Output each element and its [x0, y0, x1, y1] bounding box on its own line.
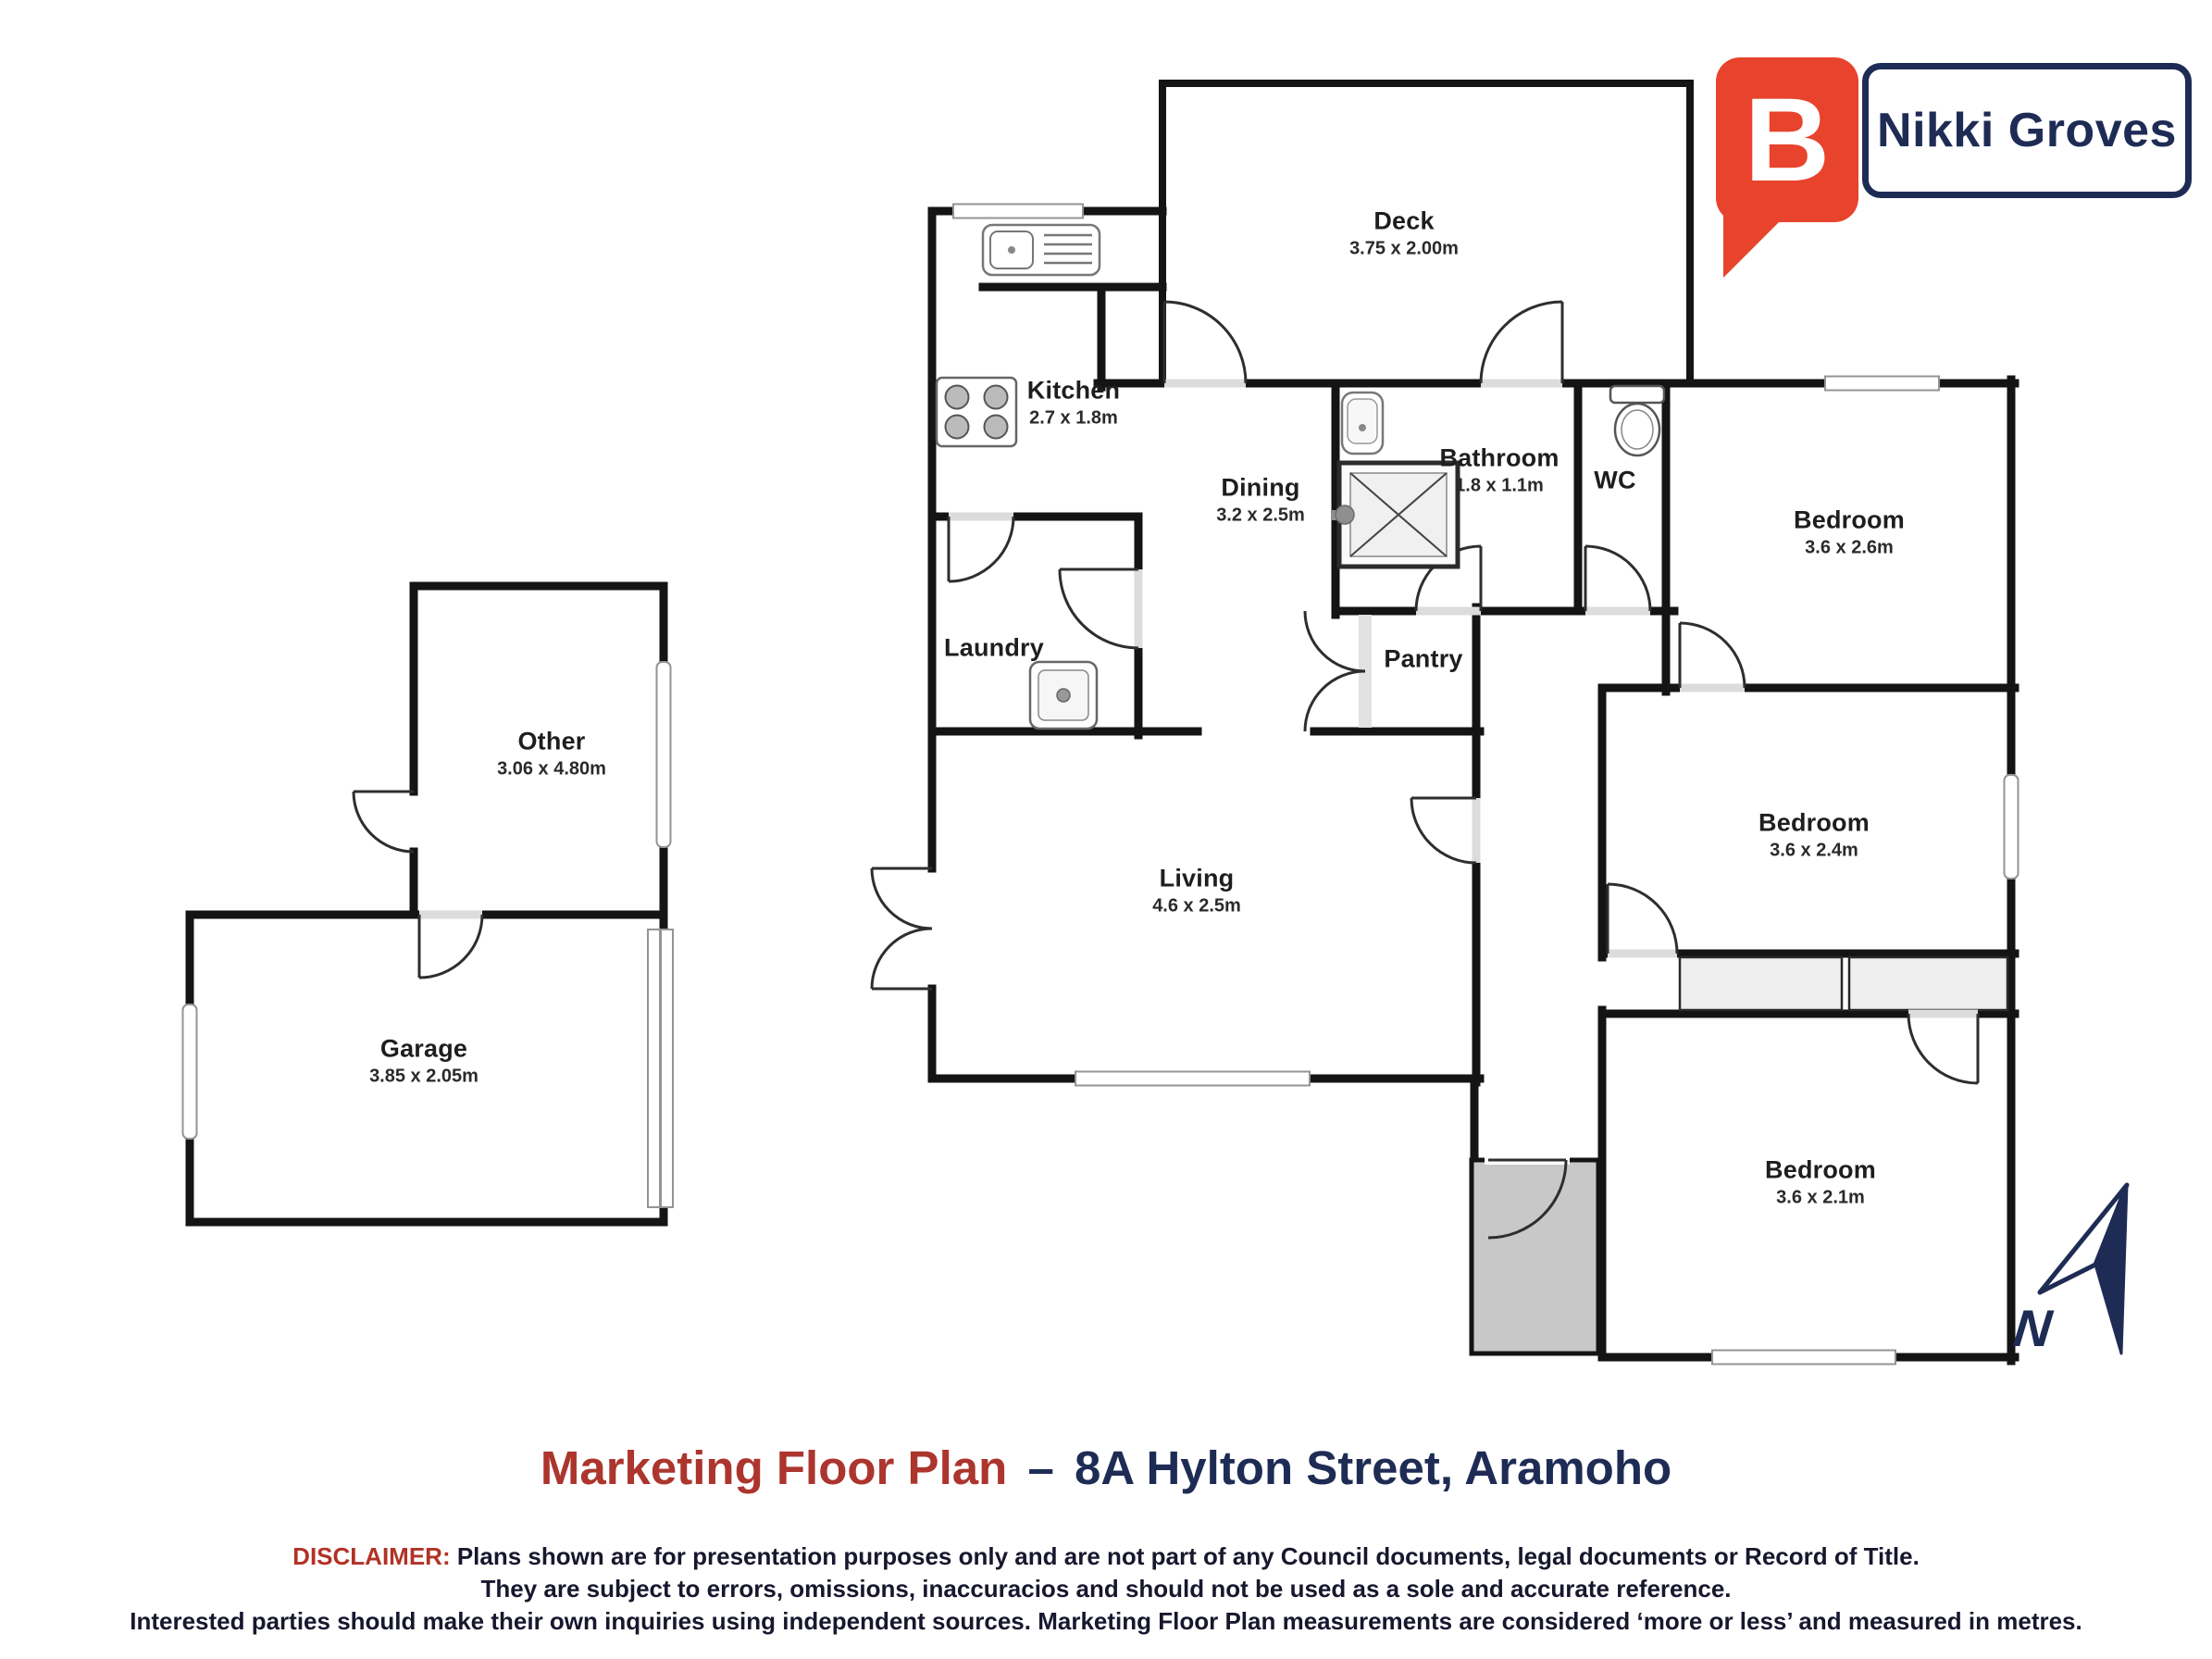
floor-plan-drawing — [0, 0, 2212, 1659]
brand-name-box: Nikki Groves — [1862, 63, 2192, 198]
room-label-wc: WC — [1594, 467, 1635, 495]
garage-door-outer — [648, 929, 660, 1207]
other-room-window — [657, 662, 671, 847]
other-room-door — [354, 792, 414, 852]
bathroom-sink-icon — [1342, 393, 1383, 454]
stove-icon — [937, 378, 1016, 446]
kitchen-laundry-door — [949, 517, 1013, 581]
bedroom1-door — [1680, 623, 1745, 688]
laundry-door — [1060, 569, 1138, 648]
room-label-dining: Dining 3.2 x 2.5m — [1216, 474, 1305, 527]
title-prefix: Marketing Floor Plan — [541, 1441, 1007, 1494]
living-window — [1075, 1072, 1310, 1086]
floor-plan-page: B Nikki Groves Deck 3.75 x 2.00m Kitchen… — [0, 0, 2212, 1659]
bedroom3-window — [1712, 1351, 1895, 1365]
room-label-pantry: Pantry — [1384, 645, 1462, 674]
north-arrow-label: N — [2011, 1298, 2055, 1358]
storage-block — [1472, 1160, 1598, 1353]
room-label-bathroom: Bathroom 1.8 x 1.1m — [1439, 444, 1559, 497]
garage-window — [183, 1004, 197, 1139]
deck-door-1 — [1164, 302, 1246, 383]
disclaimer-line-1: DISCLAIMER: Plans shown are for presenta… — [0, 1540, 2212, 1573]
pantry-bifold-doors — [1305, 611, 1365, 731]
room-label-laundry: Laundry — [944, 634, 1044, 663]
room-label-garage: Garage 3.85 x 2.05m — [369, 1035, 478, 1088]
closet-left — [1680, 957, 1842, 1010]
laundry-tub-icon — [1030, 662, 1097, 729]
living-hall-door — [1411, 798, 1476, 863]
wc-door — [1585, 546, 1650, 611]
room-label-other: Other 3.06 x 4.80m — [497, 728, 606, 780]
brand-logo-letter: B — [1716, 57, 1858, 222]
bedroom2-door — [1608, 884, 1677, 954]
disclaimer-line-3: Interested parties should make their own… — [0, 1605, 2212, 1638]
room-label-bedroom-3: Bedroom 3.6 x 2.1m — [1765, 1156, 1876, 1209]
room-label-bedroom-2: Bedroom 3.6 x 2.4m — [1758, 809, 1870, 862]
north-arrow-icon — [2040, 1185, 2127, 1353]
garage-door-inner — [661, 929, 673, 1207]
kitchen-sink-icon — [983, 225, 1100, 275]
closet-right — [1849, 957, 2007, 1010]
bedroom2-window — [2005, 775, 2019, 879]
bedroom1-window — [1825, 377, 1939, 391]
disclaimer-block: DISCLAIMER: Plans shown are for presenta… — [0, 1540, 2212, 1638]
kitchen-window — [953, 205, 1083, 218]
title-separator: – — [1020, 1441, 1061, 1494]
room-label-bedroom-1: Bedroom 3.6 x 2.6m — [1794, 506, 1905, 559]
brand-name: Nikki Groves — [1877, 103, 2177, 158]
kitchen-counter-wall — [983, 287, 1162, 387]
deck-door-2 — [1481, 302, 1562, 383]
room-label-kitchen: Kitchen 2.7 x 1.8m — [1027, 377, 1120, 430]
garage-internal-door — [419, 915, 482, 978]
living-french-doors — [872, 868, 932, 989]
room-label-deck: Deck 3.75 x 2.00m — [1349, 207, 1459, 260]
toilet-icon — [1610, 386, 1664, 455]
title-address: 8A Hylton Street, Aramoho — [1075, 1441, 1671, 1494]
disclaimer-label: DISCLAIMER: — [292, 1542, 450, 1570]
room-label-living: Living 4.6 x 2.5m — [1152, 865, 1241, 917]
bedroom3-door — [1908, 1014, 1978, 1083]
page-title: Marketing Floor Plan – 8A Hylton Street,… — [0, 1441, 2212, 1495]
outbuilding-walls — [190, 586, 664, 1222]
disclaimer-line-2: They are subject to errors, omissions, i… — [0, 1573, 2212, 1605]
